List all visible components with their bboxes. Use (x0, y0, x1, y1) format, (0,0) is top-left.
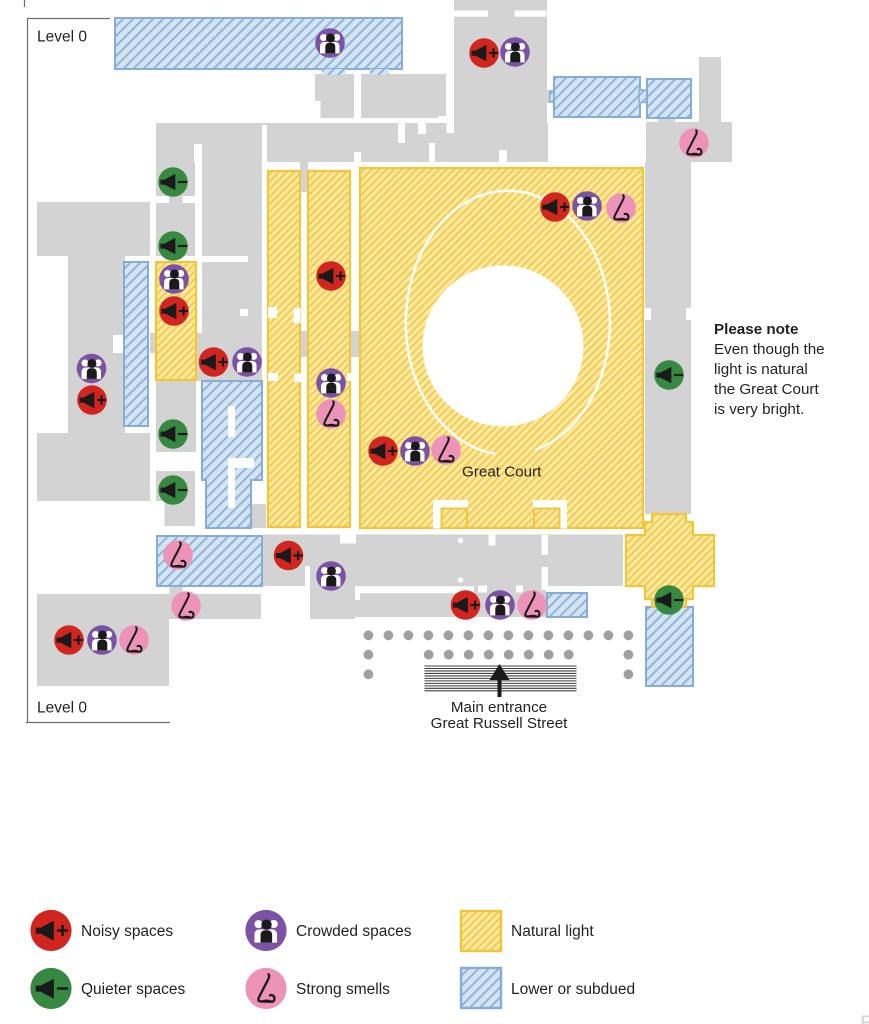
svg-text:Even though the: Even though the (714, 341, 825, 358)
svg-text:Lower or subdued: Lower or subdued (511, 981, 635, 998)
svg-text:5: 5 (860, 1011, 869, 1024)
svg-text:Level 0: Level 0 (37, 700, 87, 717)
svg-text:the Great Court: the Great Court (714, 381, 819, 398)
svg-text:is very bright.: is very bright. (714, 401, 804, 418)
svg-text:Please note: Please note (714, 321, 798, 338)
svg-text:Quieter spaces: Quieter spaces (81, 981, 185, 998)
svg-text:Great Court: Great Court (462, 464, 542, 481)
svg-text:Great Russell Street: Great Russell Street (431, 715, 569, 732)
svg-text:light is natural: light is natural (714, 361, 808, 378)
svg-text:Noisy spaces: Noisy spaces (81, 923, 173, 940)
svg-text:Crowded spaces: Crowded spaces (296, 923, 412, 940)
svg-text:Strong smells: Strong smells (296, 981, 390, 998)
svg-text:Natural light: Natural light (511, 923, 594, 940)
svg-text:Level 0: Level 0 (37, 29, 87, 46)
svg-text:Main entrance: Main entrance (451, 699, 547, 716)
